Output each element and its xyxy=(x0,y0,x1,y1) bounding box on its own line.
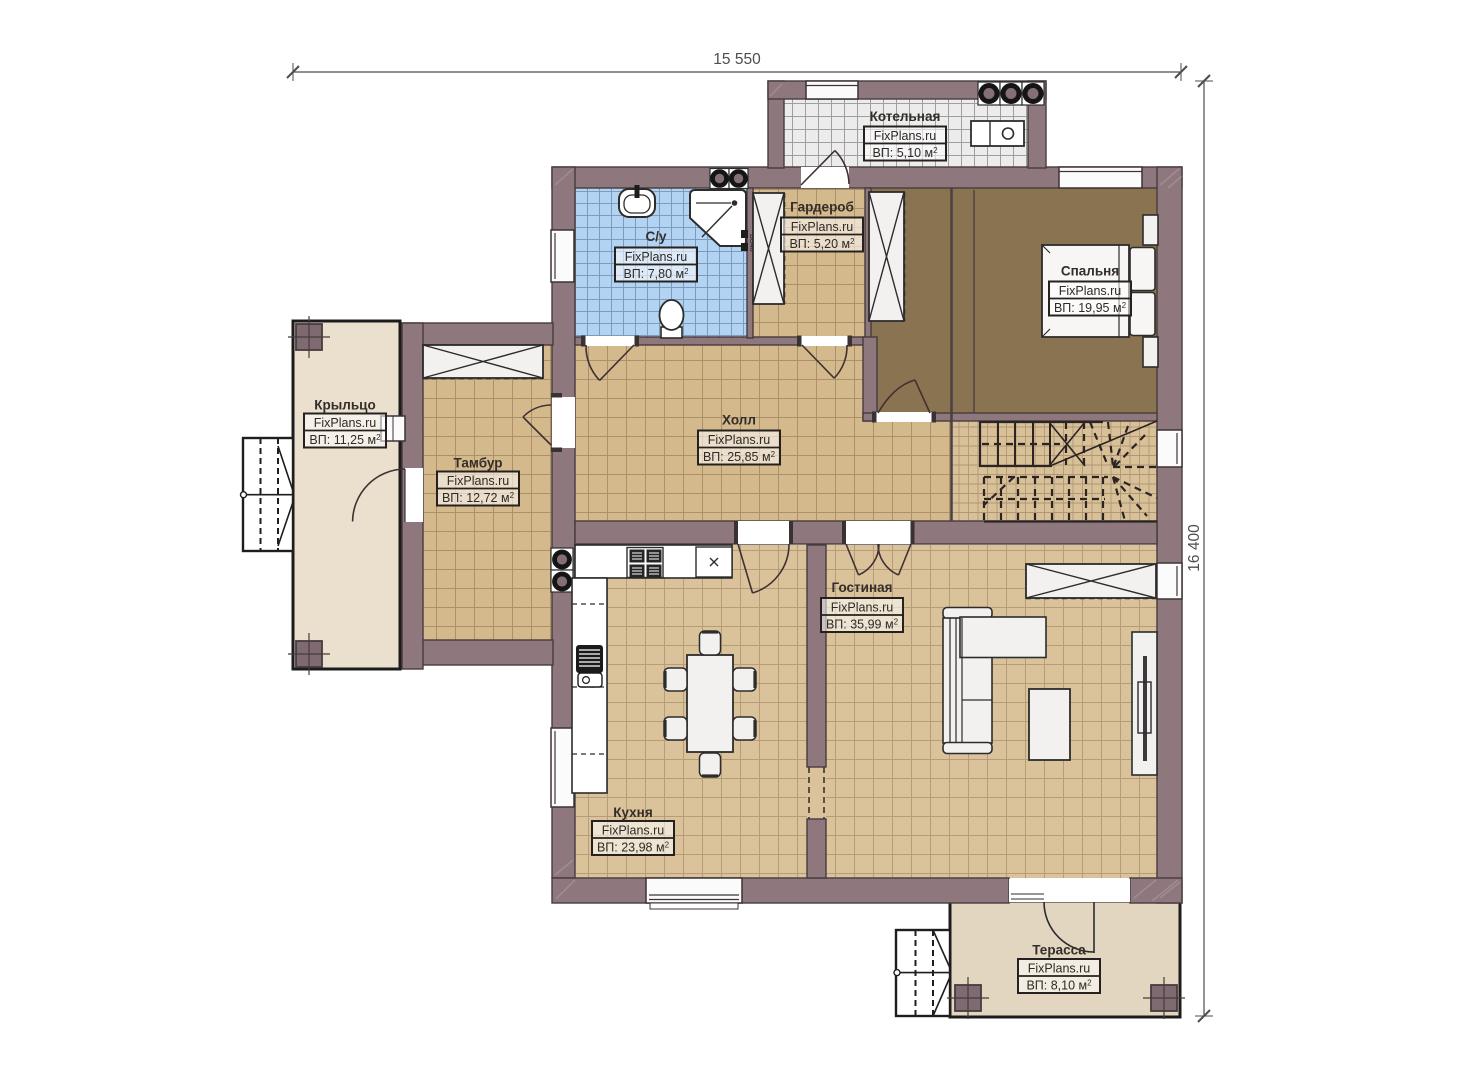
svg-text:FixPlans.ru: FixPlans.ru xyxy=(831,601,894,615)
svg-text:FixPlans.ru: FixPlans.ru xyxy=(447,474,510,488)
svg-text:ВП: 7,80 м2: ВП: 7,80 м2 xyxy=(623,267,689,281)
svg-text:FixPlans.ru: FixPlans.ru xyxy=(602,824,665,838)
svg-text:ВП: 25,85 м2: ВП: 25,85 м2 xyxy=(703,450,776,464)
svg-text:ВП: 12,72 м2: ВП: 12,72 м2 xyxy=(442,491,515,505)
svg-text:Спальня: Спальня xyxy=(1061,264,1119,279)
svg-text:FixPlans.ru: FixPlans.ru xyxy=(791,220,854,234)
svg-text:FixPlans.ru: FixPlans.ru xyxy=(874,129,937,143)
svg-text:16 400: 16 400 xyxy=(1186,524,1203,572)
svg-text:FixPlans.ru: FixPlans.ru xyxy=(1028,962,1091,976)
svg-text:Кухня: Кухня xyxy=(613,805,652,820)
svg-text:ВП: 11,25 м2: ВП: 11,25 м2 xyxy=(309,433,381,447)
svg-text:FixPlans.ru: FixPlans.ru xyxy=(708,433,771,447)
svg-text:Крыльцо: Крыльцо xyxy=(314,398,375,413)
svg-text:ВП: 5,20 м2: ВП: 5,20 м2 xyxy=(789,237,855,251)
svg-text:ВП: 23,98 м2: ВП: 23,98 м2 xyxy=(597,841,670,855)
svg-text:С/у: С/у xyxy=(645,229,667,244)
svg-text:ВП: 35,99 м2: ВП: 35,99 м2 xyxy=(826,618,899,632)
svg-text:Холл: Холл xyxy=(722,413,756,428)
svg-text:Гардероб: Гардероб xyxy=(790,200,854,215)
svg-text:FixPlans.ru: FixPlans.ru xyxy=(314,416,377,430)
svg-text:ВП: 5,10 м2: ВП: 5,10 м2 xyxy=(872,146,938,160)
svg-text:Котельная: Котельная xyxy=(870,109,941,124)
svg-text:Терасса: Терасса xyxy=(1032,943,1086,958)
svg-text:Гостиная: Гостиная xyxy=(831,580,892,595)
svg-text:Тамбур: Тамбур xyxy=(454,456,503,471)
svg-text:FixPlans.ru: FixPlans.ru xyxy=(625,250,688,264)
svg-text:ВП: 19,95 м2: ВП: 19,95 м2 xyxy=(1054,301,1127,315)
svg-text:15 550: 15 550 xyxy=(713,51,761,68)
svg-text:FixPlans.ru: FixPlans.ru xyxy=(1059,284,1122,298)
svg-text:ВП: 8,10 м2: ВП: 8,10 м2 xyxy=(1026,979,1092,993)
